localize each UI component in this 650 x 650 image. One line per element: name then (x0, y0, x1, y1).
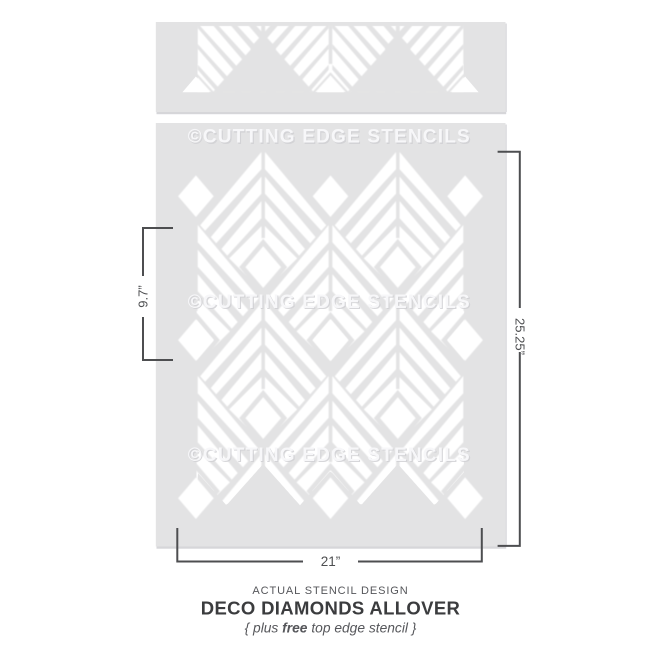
svg-text:9.7”: 9.7” (136, 285, 151, 307)
svg-text:21”: 21” (321, 554, 341, 569)
svg-text:DECO DIAMONDS ALLOVER: DECO DIAMONDS ALLOVER (201, 597, 461, 618)
svg-text:©CUTTING EDGE STENCILS: ©CUTTING EDGE STENCILS (188, 292, 471, 313)
svg-text:©CUTTING EDGE STENCILS: ©CUTTING EDGE STENCILS (188, 445, 471, 466)
svg-text:©CUTTING EDGE STENCILS: ©CUTTING EDGE STENCILS (188, 127, 471, 148)
svg-text:{ plus free top edge stencil }: { plus free top edge stencil } (245, 621, 417, 636)
svg-text:25.25”: 25.25” (512, 318, 527, 355)
svg-text:ACTUAL STENCIL DESIGN: ACTUAL STENCIL DESIGN (252, 585, 408, 597)
